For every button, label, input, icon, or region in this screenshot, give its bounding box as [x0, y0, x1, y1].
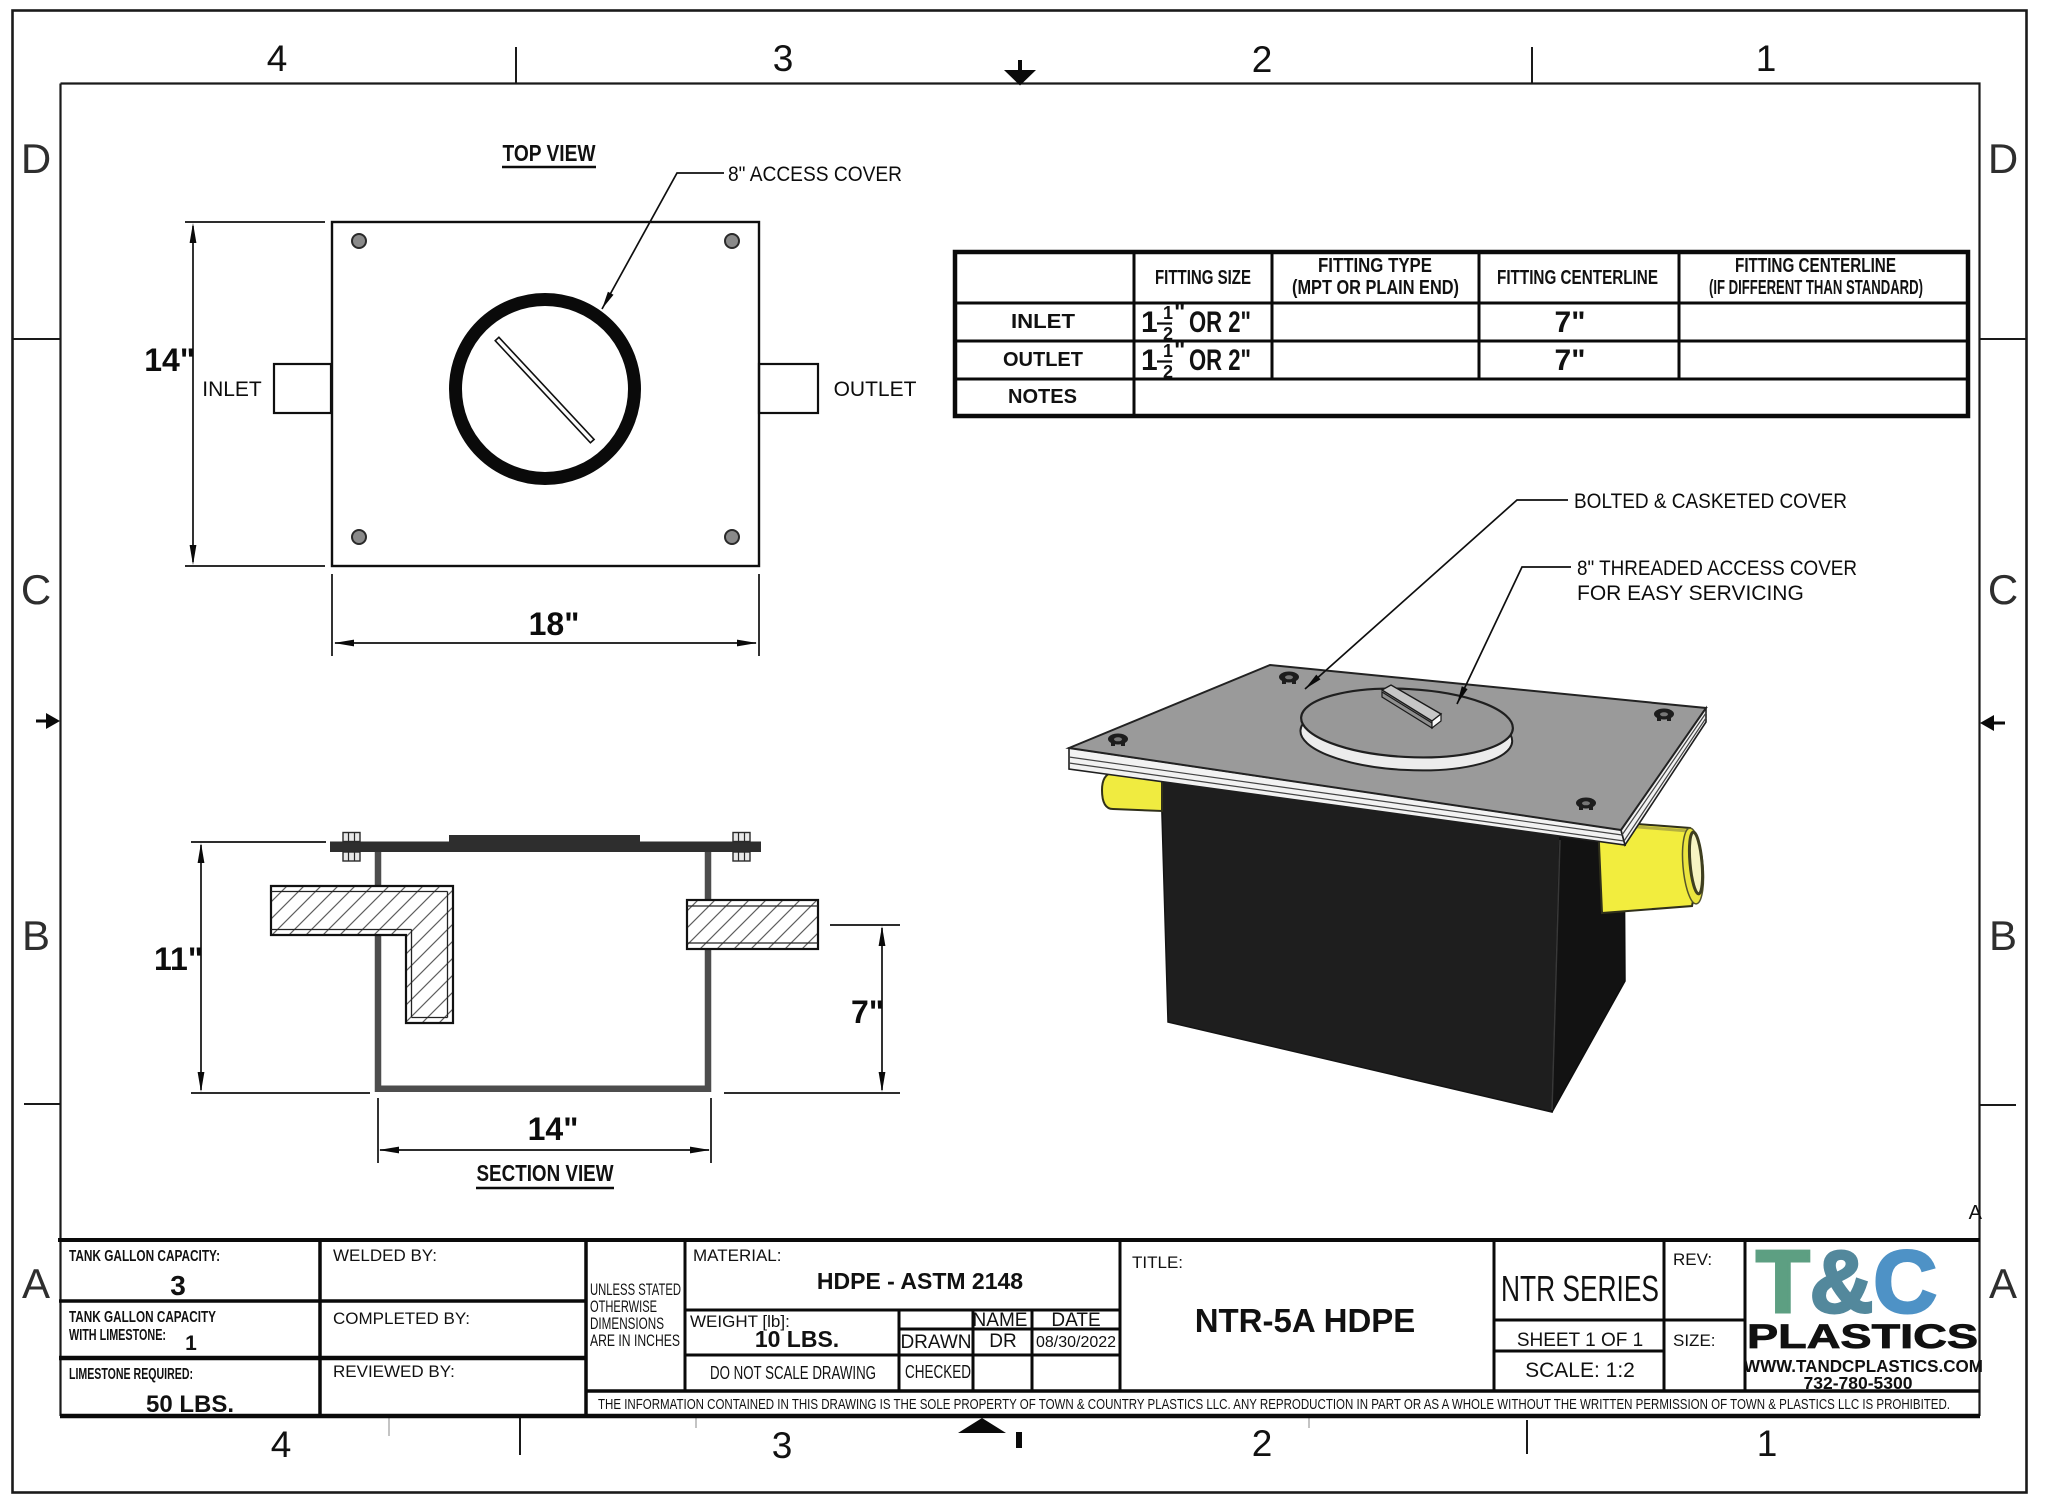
svg-text:1: 1: [1141, 306, 1158, 339]
svg-text:WITH LIMESTONE:: WITH LIMESTONE:: [69, 1327, 166, 1344]
svg-text:2: 2: [1252, 39, 1273, 80]
svg-text:08/30/2022: 08/30/2022: [1036, 1334, 1116, 1351]
svg-text:FITTING SIZE: FITTING SIZE: [1155, 267, 1251, 289]
svg-text:A: A: [1989, 1260, 2017, 1307]
svg-text:SCALE: 1:2: SCALE: 1:2: [1525, 1359, 1635, 1382]
svg-text:1: 1: [1141, 344, 1158, 377]
svg-text:NTR-5A HDPE: NTR-5A HDPE: [1195, 1302, 1416, 1339]
svg-text:18": 18": [529, 606, 580, 642]
svg-text:3: 3: [772, 1425, 793, 1466]
svg-text:3: 3: [170, 1270, 186, 1301]
svg-text:D: D: [21, 135, 51, 182]
svg-text:A: A: [22, 1260, 50, 1307]
svg-text:REV:: REV:: [1673, 1250, 1712, 1269]
svg-text:1: 1: [1163, 303, 1173, 323]
svg-text:14": 14": [528, 1111, 579, 1147]
svg-text:DRAWN: DRAWN: [900, 1332, 971, 1353]
svg-text:7": 7": [1555, 306, 1586, 339]
svg-text:1: 1: [1757, 1423, 1778, 1464]
svg-text:8" ACCESS COVER: 8" ACCESS COVER: [728, 163, 902, 186]
svg-text:MATERIAL:: MATERIAL:: [693, 1246, 781, 1265]
svg-text:REVIEWED BY:: REVIEWED BY:: [333, 1362, 455, 1381]
svg-text:2: 2: [1252, 1423, 1273, 1464]
svg-text:D: D: [1988, 135, 2018, 182]
svg-text:10 LBS.: 10 LBS.: [755, 1326, 839, 1352]
svg-text:T&C: T&C: [1756, 1232, 1937, 1331]
svg-text:FITTING CENTERLINE: FITTING CENTERLINE: [1735, 255, 1896, 277]
svg-text:OR 2": OR 2": [1189, 344, 1251, 377]
svg-text:THE INFORMATION CONTAINED IN T: THE INFORMATION CONTAINED IN THIS DRAWIN…: [598, 1397, 1950, 1413]
svg-text:DR: DR: [989, 1331, 1016, 1352]
svg-text:COMPLETED BY:: COMPLETED BY:: [333, 1309, 470, 1328]
svg-text:TITLE:: TITLE:: [1132, 1253, 1183, 1272]
svg-text:7": 7": [1555, 344, 1586, 377]
svg-text:WELDED BY:: WELDED BY:: [333, 1246, 437, 1265]
svg-text:NAME: NAME: [973, 1310, 1028, 1331]
svg-text:NOTES: NOTES: [1008, 386, 1077, 408]
svg-text:SHEET 1 OF 1: SHEET 1 OF 1: [1517, 1330, 1643, 1351]
svg-text:DATE: DATE: [1051, 1310, 1100, 1331]
svg-text:(MPT OR PLAIN END): (MPT OR PLAIN END): [1292, 277, 1459, 299]
svg-text:ARE IN INCHES: ARE IN INCHES: [590, 1331, 680, 1350]
svg-text:FITTING CENTERLINE: FITTING CENTERLINE: [1497, 267, 1658, 289]
svg-text:TANK GALLON CAPACITY:: TANK GALLON CAPACITY:: [69, 1248, 220, 1265]
svg-text:HDPE - ASTM 2148: HDPE - ASTM 2148: [817, 1268, 1023, 1294]
svg-text:SIZE:: SIZE:: [1673, 1331, 1716, 1350]
svg-text:7": 7": [851, 994, 884, 1030]
svg-text:3: 3: [773, 38, 794, 79]
svg-text:8" THREADED ACCESS COVER: 8" THREADED ACCESS COVER: [1577, 557, 1857, 580]
svg-text:PLASTICS: PLASTICS: [1747, 1318, 1978, 1356]
svg-text:INLET: INLET: [202, 378, 262, 401]
svg-text:LIMESTONE REQUIRED:: LIMESTONE REQUIRED:: [69, 1366, 193, 1383]
svg-text:B: B: [22, 912, 50, 959]
svg-text:FOR EASY SERVICING: FOR EASY SERVICING: [1577, 582, 1804, 605]
svg-text:50 LBS.: 50 LBS.: [146, 1391, 234, 1418]
svg-text:4: 4: [267, 38, 288, 79]
svg-text:1: 1: [1163, 341, 1173, 361]
svg-text:1: 1: [1756, 38, 1777, 79]
svg-text:NTR SERIES: NTR SERIES: [1501, 1268, 1659, 1309]
svg-text:FITTING TYPE: FITTING TYPE: [1318, 255, 1432, 277]
svg-text:TANK GALLON CAPACITY: TANK GALLON CAPACITY: [69, 1309, 216, 1326]
svg-text:B: B: [1989, 912, 2017, 959]
svg-text:CHECKED: CHECKED: [905, 1362, 971, 1382]
svg-text:14": 14": [144, 342, 195, 378]
svg-text:TOP VIEW: TOP VIEW: [503, 140, 596, 166]
svg-text:11": 11": [154, 941, 203, 977]
svg-text:732-780-5300: 732-780-5300: [1804, 1373, 1913, 1393]
svg-text:": ": [1174, 299, 1185, 326]
svg-text:OUTLET: OUTLET: [834, 378, 917, 401]
svg-text:OUTLET: OUTLET: [1003, 349, 1083, 371]
svg-text:2: 2: [1163, 362, 1173, 382]
svg-text:(IF DIFFERENT THAN STANDARD): (IF DIFFERENT THAN STANDARD): [1709, 277, 1923, 299]
svg-text:A: A: [1969, 1202, 1983, 1224]
svg-text:INLET: INLET: [1011, 311, 1075, 333]
svg-text:DO NOT SCALE DRAWING: DO NOT SCALE DRAWING: [710, 1363, 876, 1383]
svg-text:C: C: [21, 566, 51, 613]
svg-text:1: 1: [185, 1332, 197, 1355]
svg-text:4: 4: [271, 1424, 292, 1465]
svg-text:BOLTED & CASKETED COVER: BOLTED & CASKETED COVER: [1574, 490, 1847, 513]
svg-text:OR 2": OR 2": [1189, 306, 1251, 339]
svg-text:": ": [1174, 337, 1185, 364]
svg-text:SECTION VIEW: SECTION VIEW: [477, 1160, 614, 1186]
svg-text:C: C: [1988, 566, 2018, 613]
